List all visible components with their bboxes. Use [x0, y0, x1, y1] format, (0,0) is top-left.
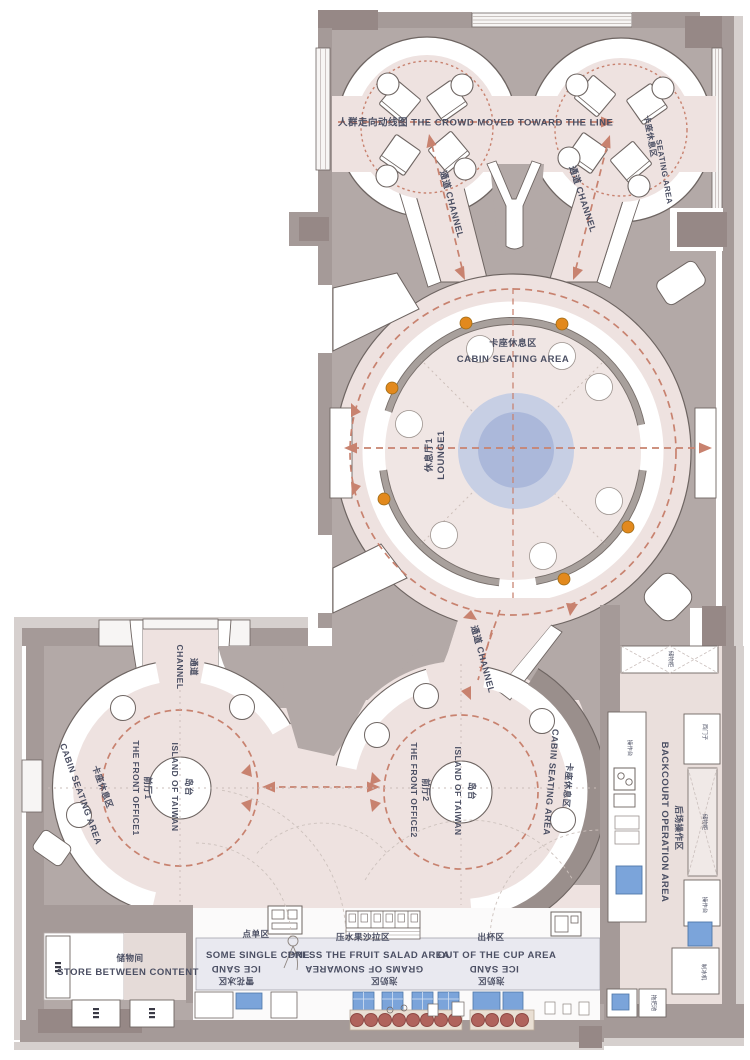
svg-text:岛台: 岛台	[184, 778, 194, 796]
svg-text:前厅1: 前厅1	[143, 776, 153, 799]
svg-text:储物间: 储物间	[115, 953, 143, 963]
svg-text:操作台: 操作台	[701, 897, 709, 914]
svg-text:人群走向动线图 THE CROWD MOVED TOWARD: 人群走向动线图 THE CROWD MOVED TOWARD THE LINE	[338, 117, 613, 129]
svg-text:西门子: 西门子	[701, 724, 709, 741]
svg-text:雪花冰区: 雪花冰区	[218, 976, 254, 986]
svg-text:STORE BETWEEN CONTENT: STORE BETWEEN CONTENT	[57, 967, 199, 978]
svg-text:THE FRONT OFFICE2: THE FRONT OFFICE2	[409, 742, 419, 837]
svg-text:泡奶区: 泡奶区	[477, 976, 504, 986]
svg-text:点单区: 点单区	[242, 929, 269, 939]
svg-text:CHANNEL: CHANNEL	[175, 644, 185, 689]
svg-text:ICE SAND: ICE SAND	[469, 963, 518, 974]
svg-text:BACKCOURT OPERATION AREA: BACKCOURT OPERATION AREA	[659, 742, 670, 903]
svg-text:ICE SAND: ICE SAND	[211, 963, 260, 974]
svg-text:CABIN SEATING AREA: CABIN SEATING AREA	[457, 354, 569, 365]
svg-text:前厅2: 前厅2	[421, 778, 431, 801]
svg-text:泡奶区: 泡奶区	[370, 976, 397, 986]
svg-text:THE FRONT OFFICE1: THE FRONT OFFICE1	[131, 740, 141, 835]
svg-text:压水果沙拉区: 压水果沙拉区	[336, 932, 390, 942]
svg-text:制冰机: 制冰机	[700, 964, 708, 981]
svg-text:后场操作区: 后场操作区	[674, 805, 684, 850]
svg-text:休息厅1: 休息厅1	[423, 438, 434, 473]
svg-text:出杯区: 出杯区	[477, 932, 504, 942]
svg-text:通道: 通道	[189, 658, 199, 676]
svg-text:OUT OF THE CUP AREA: OUT OF THE CUP AREA	[438, 950, 557, 961]
svg-text:储物柜: 储物柜	[667, 651, 675, 668]
svg-text:GRAMS OF SNOWAREA: GRAMS OF SNOWAREA	[305, 963, 423, 974]
svg-text:拖把池: 拖把池	[650, 995, 658, 1012]
svg-text:LOUNGE1: LOUNGE1	[436, 430, 447, 480]
svg-text:卡座休息区: 卡座休息区	[489, 337, 537, 348]
svg-text:ISLAND OF TAIWAN: ISLAND OF TAIWAN	[170, 742, 180, 831]
svg-text:储物柜: 储物柜	[701, 814, 709, 831]
svg-text:操作台: 操作台	[626, 740, 634, 757]
svg-text:PRESS THE FRUIT SALAD AREA: PRESS THE FRUIT SALAD AREA	[288, 950, 450, 961]
svg-text:岛台: 岛台	[467, 782, 477, 800]
svg-text:ISLAND OF TAIWAN: ISLAND OF TAIWAN	[453, 746, 463, 835]
